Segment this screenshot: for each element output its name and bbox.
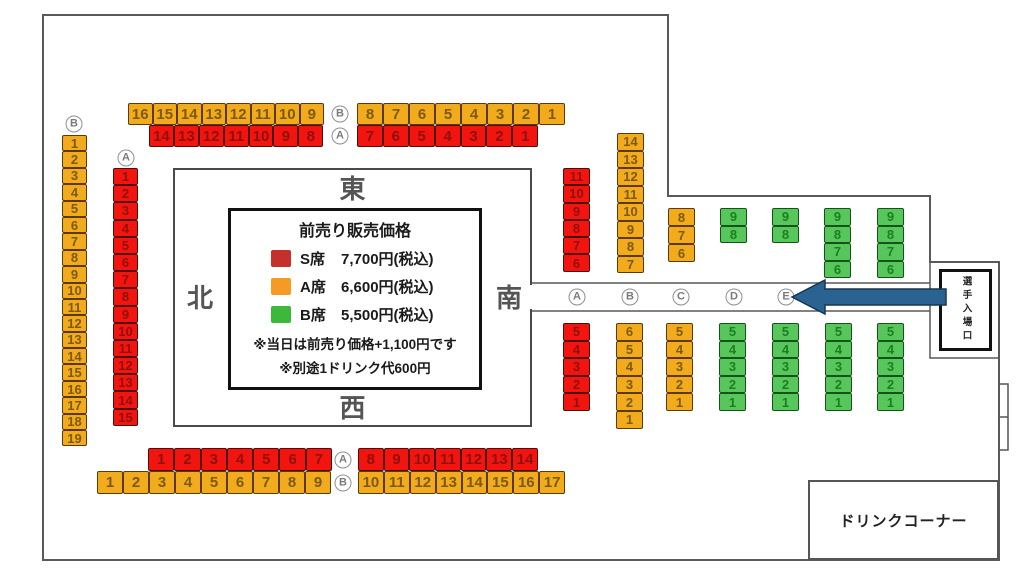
seat-bottom-row-a-right-15: 15 — [487, 471, 513, 494]
seat-bottom-row-a-left-8: 8 — [279, 471, 305, 494]
seat-left-col-a-10: 10 — [62, 283, 87, 299]
seat-group-top-row-s-left: 141312111098 — [149, 125, 323, 147]
seat-top-row-s-left-8: 8 — [298, 125, 323, 147]
seat-bottom-row-a-left-7: 7 — [253, 471, 279, 494]
seat-left-col-a-17: 17 — [62, 397, 87, 413]
seat-low-col-f-1: 1 — [825, 393, 852, 411]
row-label-B: B — [332, 106, 349, 123]
seat-top-row-a-left-12: 12 — [226, 103, 251, 125]
seat-top-row-s-right-2: 2 — [486, 125, 512, 147]
seat-low-col-e-2: 2 — [772, 376, 799, 394]
seat-mid-col-f-6: 6 — [824, 261, 851, 279]
seat-left-col-s-4: 4 — [113, 220, 138, 237]
seat-left-col-a-9: 9 — [62, 266, 87, 282]
seat-low-col-g-1: 1 — [877, 393, 904, 411]
seat-low-col-d-1: 1 — [719, 393, 746, 411]
seat-low-col-b-4: 4 — [616, 358, 643, 376]
seat-mid-col-b-10: 10 — [617, 203, 644, 221]
seat-top-row-s-left-11: 11 — [224, 125, 249, 147]
seat-left-col-a-1: 1 — [62, 135, 87, 151]
seat-low-col-e-1: 1 — [772, 393, 799, 411]
seat-bottom-row-s-right-14: 14 — [512, 448, 538, 471]
seat-left-col-a-12: 12 — [62, 315, 87, 331]
seat-bottom-row-a-right-10: 10 — [358, 471, 384, 494]
player-entrance-sign: 選手入場口 — [939, 269, 992, 351]
seat-mid-col-c-8: 8 — [668, 208, 695, 226]
seat-group-left-col-s: 123456789101112131415 — [113, 168, 138, 426]
seat-mid-col-c-6: 6 — [668, 244, 695, 262]
seat-left-col-a-5: 5 — [62, 201, 87, 217]
seat-bottom-row-a-left-1: 1 — [97, 471, 123, 494]
seat-left-col-a-4: 4 — [62, 184, 87, 200]
seat-top-row-s-left-10: 10 — [249, 125, 274, 147]
seat-mid-col-c-7: 7 — [668, 226, 695, 244]
seat-top-row-a-left-9: 9 — [300, 103, 325, 125]
row-label-C: C — [673, 289, 690, 306]
drink-corner: ドリンクコーナー — [808, 480, 999, 560]
seat-low-col-f-3: 3 — [825, 358, 852, 376]
seat-bottom-row-s-left-5: 5 — [253, 448, 279, 471]
row-label-A: A — [569, 289, 586, 306]
seat-left-col-s-1: 1 — [113, 168, 138, 185]
row-label-D: D — [726, 289, 743, 306]
seat-mid-col-b-9: 9 — [617, 221, 644, 239]
seat-low-col-f-2: 2 — [825, 376, 852, 394]
seat-mid-col-a-11: 11 — [563, 168, 590, 185]
seat-low-col-c-2: 2 — [666, 376, 693, 394]
seat-left-col-s-11: 11 — [113, 340, 138, 357]
seat-group-bottom-row-a-left: 123456789 — [97, 471, 331, 494]
seat-mid-col-g-8: 8 — [877, 226, 904, 244]
seat-top-row-s-left-13: 13 — [174, 125, 199, 147]
seat-mid-col-g-9: 9 — [877, 208, 904, 226]
seat-low-col-d-3: 3 — [719, 358, 746, 376]
row-label-B: B — [622, 289, 639, 306]
seat-left-col-s-12: 12 — [113, 357, 138, 374]
seat-group-bottom-row-s-left: 1234567 — [148, 448, 332, 471]
seat-mid-col-b-13: 13 — [617, 151, 644, 169]
row-label-E: E — [778, 289, 795, 306]
seat-bottom-row-s-left-6: 6 — [279, 448, 305, 471]
seat-left-col-s-3: 3 — [113, 202, 138, 219]
seat-group-mid-col-a: 11109876 — [563, 168, 590, 272]
seat-low-col-g-4: 4 — [877, 341, 904, 359]
seat-mid-col-b-8: 8 — [617, 238, 644, 256]
seat-mid-col-e-9: 9 — [772, 208, 799, 226]
row-label-B: B — [335, 475, 352, 492]
row-label-A: A — [335, 452, 352, 469]
seat-group-mid-col-d: 98 — [720, 208, 747, 243]
seat-low-col-f-4: 4 — [825, 341, 852, 359]
seat-left-col-a-13: 13 — [62, 332, 87, 348]
seat-top-row-a-left-15: 15 — [153, 103, 178, 125]
seat-bottom-row-s-left-4: 4 — [227, 448, 253, 471]
seat-top-row-a-right-2: 2 — [513, 103, 539, 125]
seat-low-col-g-3: 3 — [877, 358, 904, 376]
seat-low-col-g-5: 5 — [877, 323, 904, 341]
seat-group-left-col-a: 12345678910111213141516171819 — [62, 135, 87, 446]
seat-low-col-c-5: 5 — [666, 323, 693, 341]
seat-mid-col-d-8: 8 — [720, 226, 747, 244]
seat-low-col-a-3: 3 — [563, 358, 590, 376]
seat-left-col-s-6: 6 — [113, 254, 138, 271]
seat-top-row-a-right-8: 8 — [357, 103, 383, 125]
seat-bottom-row-s-left-1: 1 — [148, 448, 174, 471]
seat-top-row-s-right-1: 1 — [512, 125, 538, 147]
seat-mid-col-b-7: 7 — [617, 256, 644, 274]
seat-mid-col-b-12: 12 — [617, 168, 644, 186]
seat-mid-col-d-9: 9 — [720, 208, 747, 226]
seat-top-row-s-left-14: 14 — [149, 125, 174, 147]
seat-group-low-col-g: 54321 — [877, 323, 904, 411]
seat-left-col-s-5: 5 — [113, 237, 138, 254]
seat-top-row-a-left-11: 11 — [251, 103, 276, 125]
seat-low-col-b-5: 5 — [616, 341, 643, 359]
seat-left-col-s-10: 10 — [113, 323, 138, 340]
seat-mid-col-b-14: 14 — [617, 133, 644, 151]
seat-top-row-a-right-1: 1 — [539, 103, 565, 125]
seat-group-low-col-c: 54321 — [666, 323, 693, 411]
seat-mid-col-e-8: 8 — [772, 226, 799, 244]
seat-low-col-a-2: 2 — [563, 376, 590, 394]
seat-mid-col-a-7: 7 — [563, 237, 590, 254]
seat-left-col-a-19: 19 — [62, 430, 87, 446]
seat-bottom-row-s-right-10: 10 — [409, 448, 435, 471]
seat-top-row-s-right-5: 5 — [409, 125, 435, 147]
seat-group-bottom-row-s-right: 891011121314 — [358, 448, 538, 471]
seat-low-col-b-6: 6 — [616, 323, 643, 341]
seat-left-col-a-15: 15 — [62, 364, 87, 380]
seat-top-row-s-right-7: 7 — [357, 125, 383, 147]
seat-bottom-row-s-right-8: 8 — [358, 448, 384, 471]
seat-mid-col-g-6: 6 — [877, 261, 904, 279]
seat-bottom-row-s-left-2: 2 — [174, 448, 200, 471]
seat-low-col-b-2: 2 — [616, 393, 643, 411]
seat-left-col-a-18: 18 — [62, 414, 87, 430]
seat-group-mid-col-c: 876 — [668, 208, 695, 262]
seat-mid-col-g-7: 7 — [877, 243, 904, 261]
seat-bottom-row-a-right-16: 16 — [513, 471, 539, 494]
seat-top-row-a-left-10: 10 — [275, 103, 300, 125]
seat-low-col-e-5: 5 — [772, 323, 799, 341]
seat-top-row-a-right-6: 6 — [409, 103, 435, 125]
seat-bottom-row-s-right-9: 9 — [384, 448, 410, 471]
seating-chart: 東 北 南 西 前売り販売価格 S席7,700円(税込)A席6,600円(税込)… — [0, 0, 1024, 575]
seat-top-row-s-right-4: 4 — [435, 125, 461, 147]
seat-group-low-col-a: 54321 — [563, 323, 590, 411]
seat-mid-col-a-8: 8 — [563, 220, 590, 237]
seat-mid-col-a-9: 9 — [563, 203, 590, 220]
seat-bottom-row-s-left-7: 7 — [306, 448, 332, 471]
seat-bottom-row-a-right-11: 11 — [384, 471, 410, 494]
seat-bottom-row-a-right-14: 14 — [462, 471, 488, 494]
seat-mid-col-f-8: 8 — [824, 226, 851, 244]
seat-left-col-s-13: 13 — [113, 374, 138, 391]
seat-top-row-a-left-14: 14 — [177, 103, 202, 125]
seat-left-col-a-14: 14 — [62, 348, 87, 364]
seat-left-col-s-2: 2 — [113, 185, 138, 202]
seat-bottom-row-a-right-17: 17 — [539, 471, 565, 494]
seat-mid-col-a-10: 10 — [563, 185, 590, 202]
seat-left-col-a-2: 2 — [62, 151, 87, 167]
seat-top-row-s-left-12: 12 — [199, 125, 224, 147]
seat-left-col-s-7: 7 — [113, 271, 138, 288]
seat-left-col-s-15: 15 — [113, 409, 138, 426]
seat-bottom-row-s-right-13: 13 — [486, 448, 512, 471]
seat-left-col-s-14: 14 — [113, 391, 138, 408]
seat-low-col-g-2: 2 — [877, 376, 904, 394]
seat-top-row-s-right-3: 3 — [461, 125, 487, 147]
seat-top-row-a-right-5: 5 — [435, 103, 461, 125]
seat-left-col-a-3: 3 — [62, 168, 87, 184]
seat-bottom-row-a-left-4: 4 — [175, 471, 201, 494]
seat-low-col-c-3: 3 — [666, 358, 693, 376]
seat-group-low-col-b: 654321 — [616, 323, 643, 429]
seat-bottom-row-a-left-2: 2 — [123, 471, 149, 494]
seat-group-low-col-d: 54321 — [719, 323, 746, 411]
seat-low-col-b-3: 3 — [616, 376, 643, 394]
seat-left-col-a-8: 8 — [62, 250, 87, 266]
seat-top-row-s-right-6: 6 — [383, 125, 409, 147]
seat-top-row-a-left-13: 13 — [202, 103, 227, 125]
seat-group-bottom-row-a-right: 1011121314151617 — [358, 471, 565, 494]
seat-left-col-s-9: 9 — [113, 306, 138, 323]
seat-group-mid-col-b: 1413121110987 — [617, 133, 644, 273]
seat-top-row-a-right-3: 3 — [487, 103, 513, 125]
seat-low-col-e-3: 3 — [772, 358, 799, 376]
seat-group-mid-col-e: 98 — [772, 208, 799, 243]
seat-group-low-col-e: 54321 — [772, 323, 799, 411]
row-label-A: A — [118, 150, 135, 167]
seat-group-mid-col-f: 9876 — [824, 208, 851, 278]
seat-top-row-a-left-16: 16 — [128, 103, 153, 125]
seat-low-col-d-5: 5 — [719, 323, 746, 341]
seat-group-low-col-f: 54321 — [825, 323, 852, 411]
seat-left-col-a-11: 11 — [62, 299, 87, 315]
seat-low-col-a-1: 1 — [563, 393, 590, 411]
seat-low-col-d-2: 2 — [719, 376, 746, 394]
seat-top-row-s-left-9: 9 — [273, 125, 298, 147]
player-entrance-label: 選手入場口 — [959, 276, 973, 344]
seat-low-col-c-1: 1 — [666, 393, 693, 411]
seat-low-col-e-4: 4 — [772, 341, 799, 359]
seat-top-row-a-right-7: 7 — [383, 103, 409, 125]
seat-low-col-c-4: 4 — [666, 341, 693, 359]
drink-corner-label: ドリンクコーナー — [839, 510, 967, 531]
seat-group-top-row-a-right: 87654321 — [357, 103, 565, 125]
seat-left-col-s-8: 8 — [113, 288, 138, 305]
seat-mid-col-f-9: 9 — [824, 208, 851, 226]
seat-mid-col-f-7: 7 — [824, 243, 851, 261]
seat-mid-col-b-11: 11 — [617, 186, 644, 204]
seat-low-col-f-5: 5 — [825, 323, 852, 341]
seat-bottom-row-a-left-3: 3 — [149, 471, 175, 494]
seat-group-mid-col-g: 9876 — [877, 208, 904, 278]
seat-bottom-row-a-left-5: 5 — [201, 471, 227, 494]
seat-top-row-a-right-4: 4 — [461, 103, 487, 125]
row-label-A: A — [332, 128, 349, 145]
seat-low-col-b-1: 1 — [616, 411, 643, 429]
seat-bottom-row-s-left-3: 3 — [201, 448, 227, 471]
seat-low-col-a-5: 5 — [563, 323, 590, 341]
seat-left-col-a-7: 7 — [62, 233, 87, 249]
seat-low-col-d-4: 4 — [719, 341, 746, 359]
seat-bottom-row-a-right-12: 12 — [410, 471, 436, 494]
seat-group-top-row-a-left: 161514131211109 — [128, 103, 324, 125]
seat-low-col-a-4: 4 — [563, 341, 590, 359]
seat-left-col-a-6: 6 — [62, 217, 87, 233]
seat-bottom-row-a-left-6: 6 — [227, 471, 253, 494]
seat-bottom-row-s-right-12: 12 — [461, 448, 487, 471]
seat-group-top-row-s-right: 7654321 — [357, 125, 538, 147]
seat-bottom-row-a-right-13: 13 — [436, 471, 462, 494]
row-label-B: B — [66, 116, 83, 133]
seat-bottom-row-s-right-11: 11 — [435, 448, 461, 471]
seat-mid-col-a-6: 6 — [563, 254, 590, 271]
seat-bottom-row-a-left-9: 9 — [305, 471, 331, 494]
seat-left-col-a-16: 16 — [62, 381, 87, 397]
